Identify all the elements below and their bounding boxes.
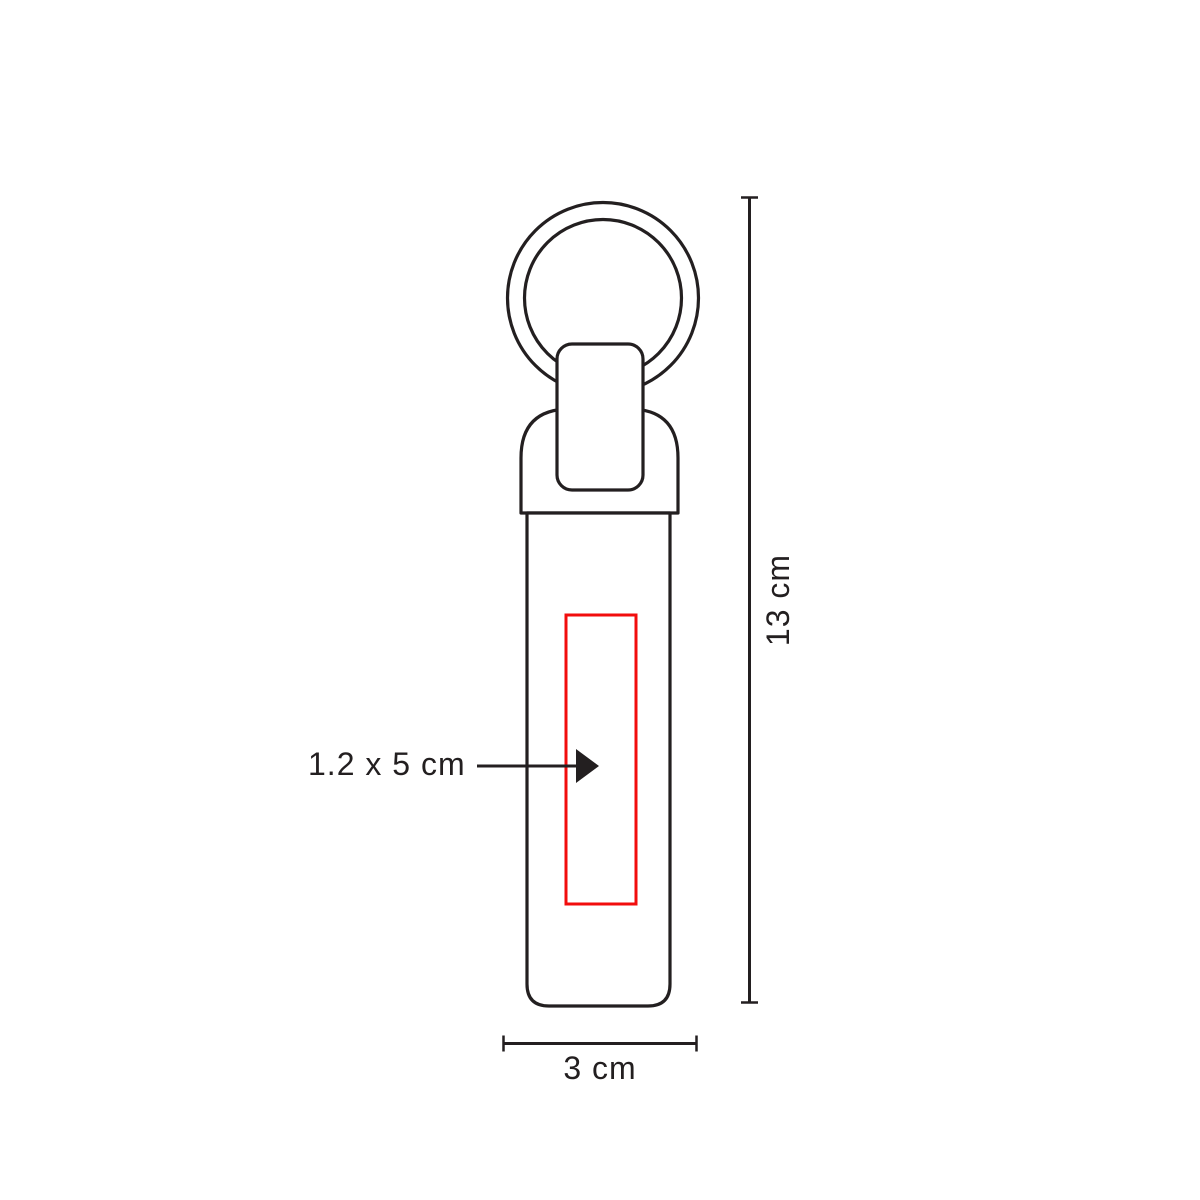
height-size-label: 13 cm xyxy=(762,554,794,646)
diagram-canvas: 1.2 x 5 cm 13 cm 3 cm xyxy=(0,0,1200,1200)
print-area-size-label: 1.2 x 5 cm xyxy=(308,748,464,780)
product-dimension-diagram xyxy=(0,0,1200,1200)
strap-loop-shape xyxy=(557,344,643,490)
height-dimension-line xyxy=(741,198,758,1003)
strap-body-shape xyxy=(527,513,670,1006)
width-size-label: 3 cm xyxy=(563,1052,636,1084)
